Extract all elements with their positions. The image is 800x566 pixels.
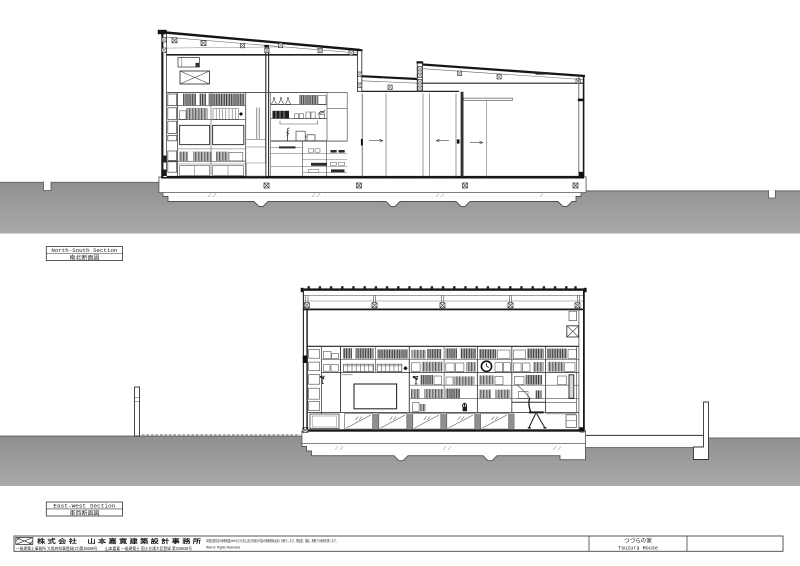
svg-text:つづらの家: つづらの家 (624, 536, 652, 544)
svg-text:東西断面図: 東西断面図 (69, 509, 99, 517)
svg-text:North-South Section: North-South Section (51, 247, 117, 254)
svg-text:Web A: Rights Reserved: Web A: Rights Reserved (206, 545, 240, 549)
svg-text:株 式 会 社 山 本 嘉 寛 建 築 設 計 事 務 所: 株 式 会 社 山 本 嘉 寛 建 築 設 計 事 務 所 (37, 537, 202, 545)
svg-text:本図記載内容の無断転載(Webなどを含む)及び本設計内容の無: 本図記載内容の無断転載(Webなどを含む)及び本設計内容の無断使用は固くお断りし… (206, 538, 338, 543)
svg-text:East-West Section: East-West Section (53, 503, 115, 510)
svg-text:南北断面図: 南北断面図 (69, 254, 99, 262)
svg-text:一級建築士事務所 大阪府知事登録(ロ)第25589号 山本: 一級建築士事務所 大阪府知事登録(ロ)第25589号 山本嘉寛 一級建築士 国土… (16, 545, 192, 551)
svg-text:Tsuzura House: Tsuzura House (618, 546, 658, 552)
